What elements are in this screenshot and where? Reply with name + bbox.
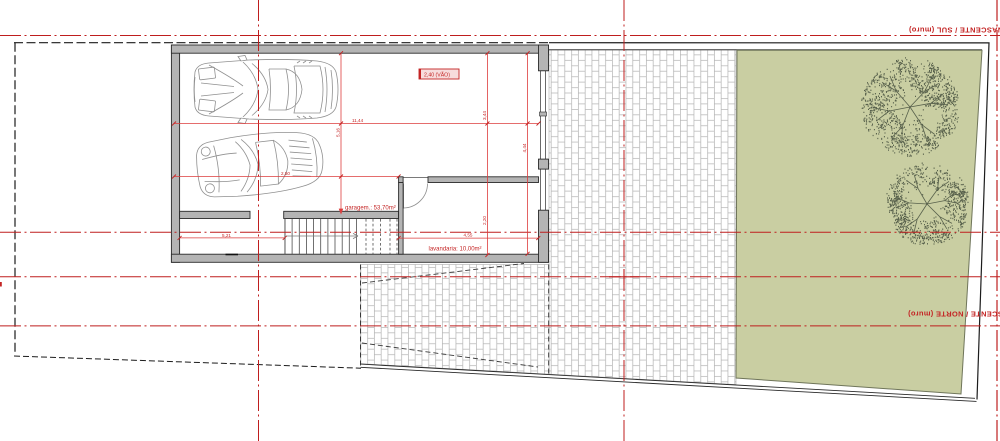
svg-text:NASCENTE / NORTE (muro): NASCENTE / NORTE (muro) xyxy=(908,310,1000,319)
svg-text:NASCENTE / SUL (muro): NASCENTE / SUL (muro) xyxy=(909,26,1000,35)
svg-text:2,20: 2,20 xyxy=(482,216,487,225)
svg-text:2,40 (VÃO): 2,40 (VÃO) xyxy=(424,71,450,78)
svg-text:garagem.: 53,70m²: garagem.: 53,70m² xyxy=(345,206,396,212)
svg-text:lavandaria: 10,00m²: lavandaria: 10,00m² xyxy=(429,247,482,253)
svg-text:5,16: 5,16 xyxy=(336,128,341,137)
svg-text:5,21: 5,21 xyxy=(222,233,231,238)
svg-text:4,55: 4,55 xyxy=(464,233,473,238)
svg-text:11,44: 11,44 xyxy=(352,118,364,123)
svg-text:2,50: 2,50 xyxy=(281,171,290,176)
svg-text:3,44: 3,44 xyxy=(482,111,487,120)
svg-text:4,44: 4,44 xyxy=(522,143,527,152)
